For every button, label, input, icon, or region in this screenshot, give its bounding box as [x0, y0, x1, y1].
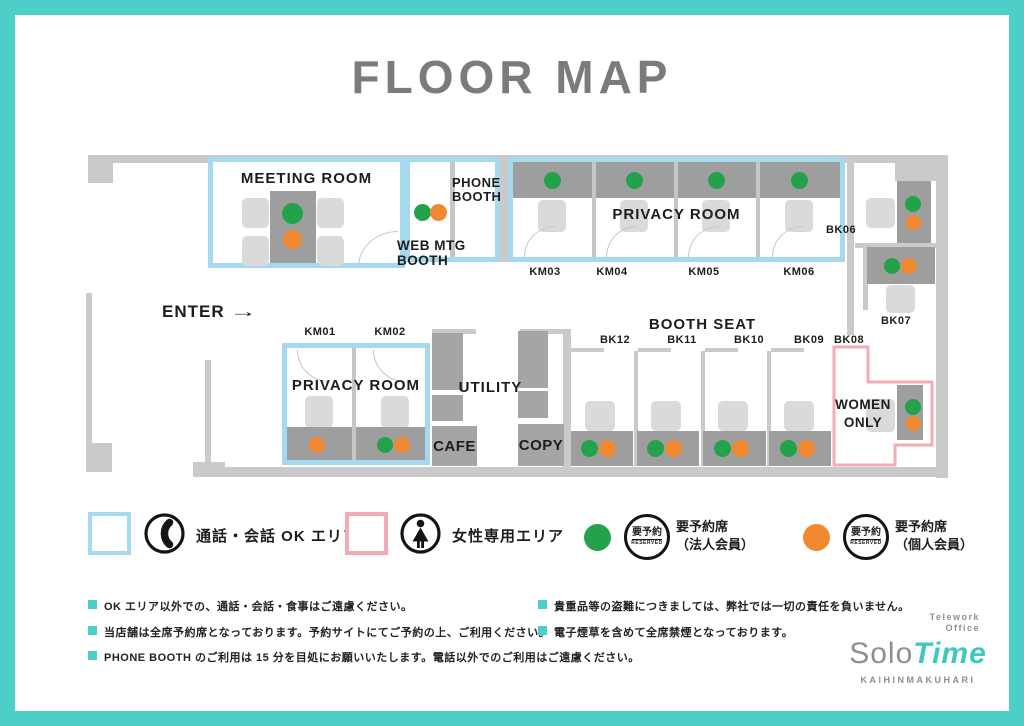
- note-item: PHONE BOOTH のご利用は 15 分を目処にお願いいたします。電話以外で…: [104, 649, 640, 665]
- chair: [651, 401, 681, 431]
- unit-label-bk08: BK08: [824, 334, 874, 346]
- enter-label: ENTER→: [162, 302, 253, 322]
- individual-seat-dot: [309, 437, 325, 453]
- wall: [88, 155, 113, 183]
- enter-text: ENTER: [162, 302, 225, 321]
- wall: [771, 348, 804, 352]
- note-bullet: [88, 600, 97, 609]
- corporate-seat-dot: [714, 440, 731, 457]
- corporate-member-legend: 要予約席 （法人会員）: [676, 518, 754, 553]
- individual-member-line2: （個人会員）: [895, 536, 973, 554]
- logo-location: KAIHINMAKUHARI: [848, 675, 988, 685]
- reserved-badge-subtext: RESERVED: [631, 540, 662, 547]
- corporate-seat-dot: [780, 440, 797, 457]
- unit-label-km01: KM01: [295, 326, 345, 338]
- reserved-badge: 要予約 RESERVED: [843, 514, 889, 560]
- unit-label-bk06: BK06: [820, 224, 862, 236]
- corporate-seat-dot: [581, 440, 598, 457]
- logo-brand-time: Time: [913, 637, 986, 670]
- note-bullet: [88, 651, 97, 660]
- logo-tagline: Telework Office: [848, 612, 988, 635]
- corporate-member-line2: （法人会員）: [676, 536, 754, 554]
- individual-seat-dot: [283, 230, 302, 249]
- wall: [86, 443, 112, 472]
- corporate-seat-dot: [282, 203, 303, 224]
- individual-seat-dot: [906, 416, 921, 431]
- corporate-seat-dot: [544, 172, 561, 189]
- individual-member-legend: 要予約席 （個人会員）: [895, 518, 973, 553]
- logo-tagline-line2: Office: [945, 623, 980, 633]
- meeting-table: [270, 191, 316, 263]
- note-bullet: [538, 600, 547, 609]
- call-ok-area-label: 通話・会話 OK エリア: [196, 525, 359, 546]
- individual-seat-dot: [906, 215, 921, 230]
- women-only-area-legend-label: 女性専用エリア: [452, 525, 564, 546]
- chair: [784, 401, 814, 431]
- note-item: OK エリア以外での、通話・会話・食事はご遠慮ください。: [104, 598, 413, 614]
- woman-icon: [399, 512, 442, 555]
- corporate-member-line1: 要予約席: [676, 518, 754, 536]
- utility-counter: [432, 395, 463, 421]
- wall: [847, 163, 854, 335]
- individual-seat-dot: [665, 440, 682, 457]
- cafe-area: CAFE: [432, 426, 477, 466]
- individual-seat-dot: [798, 440, 815, 457]
- individual-member-line1: 要予約席: [895, 518, 973, 536]
- corporate-seat-dot: [647, 440, 664, 457]
- corporate-seat-dot: [708, 172, 725, 189]
- call-ok-area-swatch: [88, 512, 131, 555]
- corporate-seat-dot: [905, 196, 921, 212]
- booth-seat-label: BOOTH SEAT: [630, 316, 775, 333]
- chair: [866, 198, 895, 228]
- individual-seat-dot: [803, 524, 830, 551]
- individual-seat-dot: [430, 204, 447, 221]
- chair: [381, 396, 409, 428]
- individual-seat-dot: [901, 258, 917, 274]
- privacy-room-top-label: PRIVACY ROOM: [508, 206, 845, 223]
- meeting-room-label: MEETING ROOM: [208, 170, 405, 187]
- copy-area: COPY: [518, 424, 564, 466]
- corporate-seat-dot: [905, 399, 921, 415]
- corporate-seat-dot: [584, 524, 611, 551]
- chair: [317, 236, 344, 266]
- corporate-seat-dot: [377, 437, 393, 453]
- enter-arrow-icon: →: [229, 302, 258, 322]
- wall: [705, 348, 738, 352]
- unit-label-km03: KM03: [520, 266, 570, 278]
- corporate-seat-dot: [414, 204, 431, 221]
- unit-label-bk10: BK10: [724, 334, 774, 346]
- unit-label-bk12: BK12: [590, 334, 640, 346]
- logo-brand: SoloTime: [848, 637, 988, 670]
- reserved-badge-subtext: RESERVED: [850, 540, 881, 547]
- unit-label-bk07: BK07: [874, 315, 918, 327]
- desk: [897, 181, 931, 243]
- unit-label-km04: KM04: [587, 266, 637, 278]
- chair: [585, 401, 615, 431]
- chair: [886, 285, 915, 313]
- logo-tagline-line1: Telework: [930, 612, 980, 622]
- phone-booth-label: PHONE BOOTH: [452, 176, 502, 205]
- note-item: 電子煙草を含めて全席禁煙となっております。: [554, 624, 793, 640]
- corporate-seat-dot: [791, 172, 808, 189]
- wall: [571, 348, 604, 352]
- unit-label-km05: KM05: [679, 266, 729, 278]
- individual-seat-dot: [732, 440, 749, 457]
- corporate-seat-dot: [626, 172, 643, 189]
- chair: [317, 198, 344, 228]
- note-bullet: [88, 626, 97, 635]
- note-bullet: [538, 626, 547, 635]
- logo-brand-solo: Solo: [849, 637, 913, 670]
- phone-icon: [143, 512, 186, 555]
- unit-label-km02: KM02: [365, 326, 415, 338]
- utility-label: UTILITY: [448, 379, 533, 396]
- women-only-label: WOMEN ONLY: [832, 396, 894, 431]
- wall: [638, 348, 671, 352]
- page-title: FLOOR MAP: [0, 50, 1024, 104]
- wall: [205, 360, 211, 467]
- individual-seat-dot: [599, 440, 616, 457]
- web-mtg-booth-label: WEB MTG BOOTH: [397, 239, 477, 269]
- corporate-seat-dot: [884, 258, 900, 274]
- note-item: 当店舗は全席予約席となっております。予約サイトにてご予約の上、ご利用ください。: [104, 624, 550, 640]
- unit-label-bk11: BK11: [657, 334, 707, 346]
- women-only-area-swatch: [345, 512, 388, 555]
- wall: [86, 293, 92, 445]
- reserved-badge: 要予約 RESERVED: [624, 514, 670, 560]
- chair: [242, 198, 269, 228]
- chair: [718, 401, 748, 431]
- reserved-badge-text: 要予約: [632, 528, 662, 540]
- chair: [242, 236, 269, 266]
- privacy-room-bottom-label: PRIVACY ROOM: [282, 377, 430, 394]
- unit-label-km06: KM06: [774, 266, 824, 278]
- individual-seat-dot: [394, 437, 410, 453]
- solotime-logo: Telework Office SoloTime KAIHINMAKUHARI: [848, 612, 988, 685]
- reserved-badge-text: 要予約: [851, 528, 881, 540]
- chair: [305, 396, 333, 428]
- wall: [563, 329, 571, 467]
